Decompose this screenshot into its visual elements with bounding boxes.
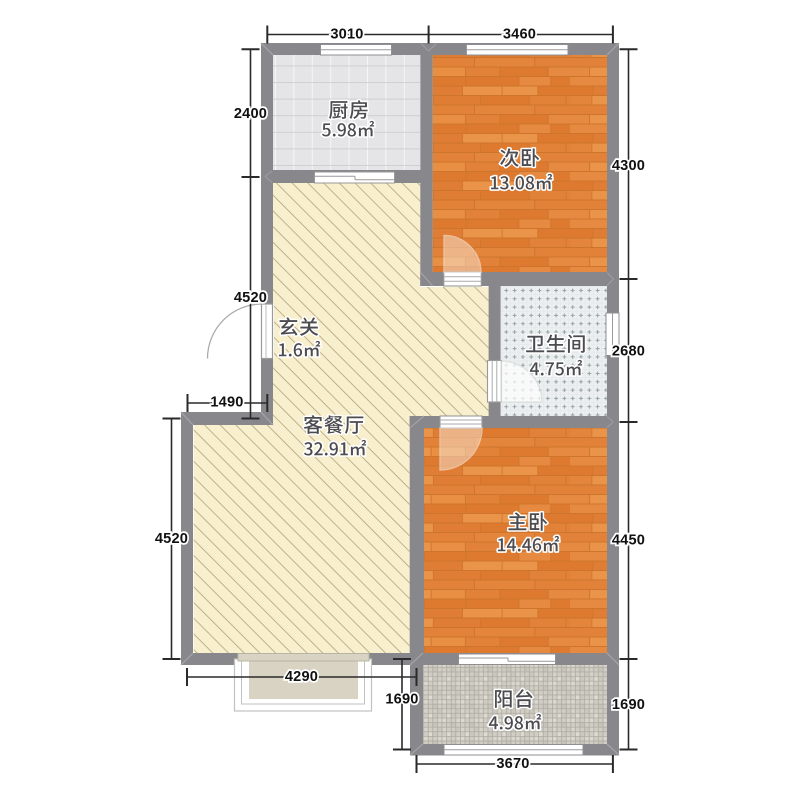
svg-text:4290: 4290 xyxy=(285,669,318,685)
svg-text:1690: 1690 xyxy=(385,692,418,708)
svg-text:3010: 3010 xyxy=(330,27,363,43)
svg-text:4520: 4520 xyxy=(234,290,267,306)
svg-text:2680: 2680 xyxy=(612,344,645,360)
svg-text:1490: 1490 xyxy=(210,395,243,411)
svg-text:4300: 4300 xyxy=(612,158,645,174)
svg-text:4450: 4450 xyxy=(612,533,645,549)
svg-text:1690: 1690 xyxy=(612,697,645,713)
svg-text:3670: 3670 xyxy=(496,756,529,772)
svg-text:4520: 4520 xyxy=(155,531,188,547)
svg-text:2400: 2400 xyxy=(234,106,267,122)
svg-text:3460: 3460 xyxy=(503,27,536,43)
